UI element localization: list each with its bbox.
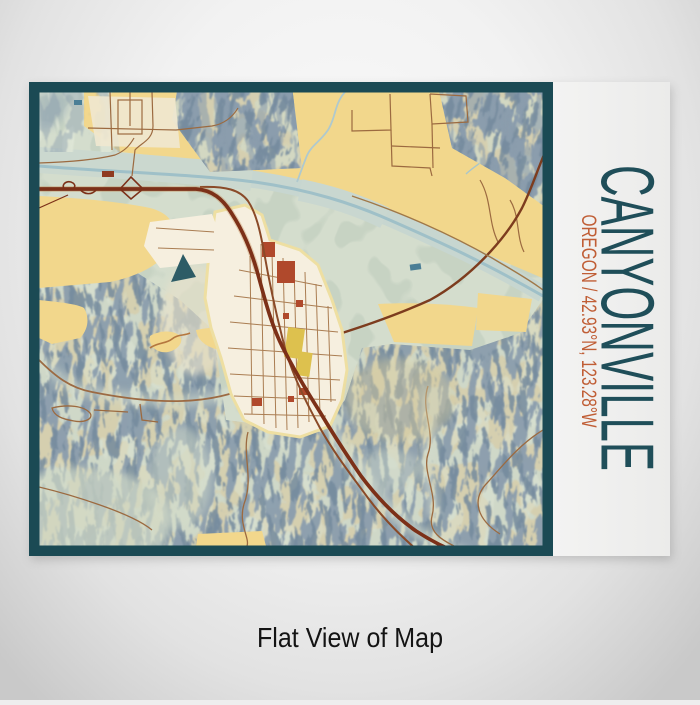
svg-text:Flat View of Map: Flat View of Map [257,622,443,653]
svg-text:OREGON / 42.93°N, 123.28°W: OREGON / 42.93°N, 123.28°W [577,215,601,429]
